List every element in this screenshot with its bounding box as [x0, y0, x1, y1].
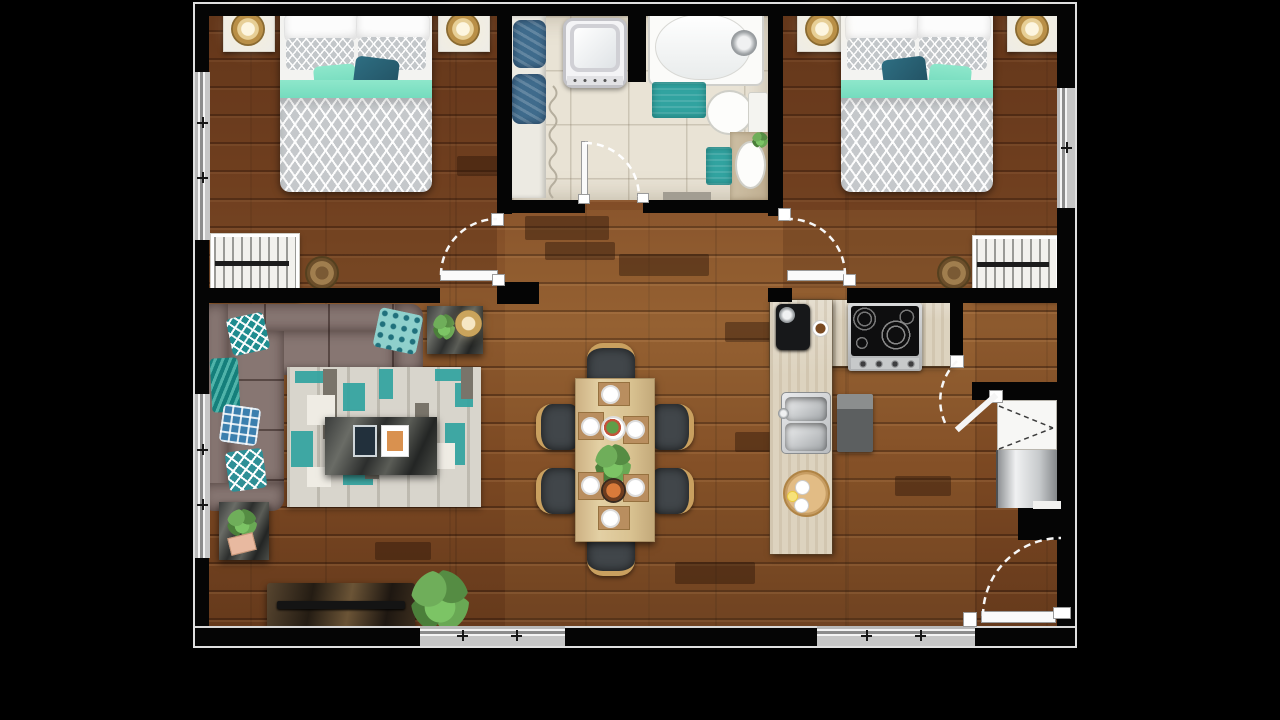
chevron-duvet [841, 98, 993, 192]
apartment-floor-plan [195, 4, 1075, 646]
sink-basin [785, 423, 827, 451]
cooktop-knobs [851, 358, 919, 369]
dresser-rail [215, 261, 289, 266]
geometric-throw-pillow [219, 404, 262, 447]
rug-block [435, 369, 463, 381]
door-jamb [1053, 607, 1071, 619]
window [195, 394, 210, 558]
book [353, 425, 377, 457]
bathroom-door-leaf [581, 141, 588, 197]
tv [277, 601, 405, 609]
dining-chair [536, 468, 578, 514]
window-mullion [511, 630, 522, 641]
folded-towel [513, 20, 546, 68]
wall-bedroom-1-south [195, 288, 440, 303]
door-jamb [492, 274, 505, 286]
plate [601, 385, 620, 404]
door-jamb [578, 194, 590, 204]
table-lamp [1015, 12, 1049, 46]
window-mullion [1061, 142, 1072, 153]
book [381, 425, 409, 457]
table-lamp [231, 12, 265, 46]
window-mullion [457, 630, 468, 641]
door-jamb [989, 390, 1003, 403]
wall-fridge-nook [1018, 508, 1057, 540]
folded-towel [512, 74, 546, 124]
door-jamb [491, 213, 504, 226]
wall-bathroom-south-b [643, 200, 770, 213]
food-bowl [601, 478, 626, 503]
dining-chair [652, 468, 694, 514]
plank-patch [525, 216, 609, 240]
entry-door-leaf [981, 611, 1056, 623]
wall-closet-north [972, 382, 1057, 400]
wall-kitchen-north-stub [768, 288, 792, 302]
door-jamb [963, 612, 977, 627]
window [420, 626, 565, 646]
refrigerator [996, 450, 1057, 508]
washing-machine-panel [567, 76, 623, 85]
round-basket [937, 256, 971, 290]
window-mullion [197, 117, 208, 128]
gold-bowl [455, 310, 482, 337]
window [817, 626, 975, 646]
four-burner-cooktop [851, 306, 919, 356]
plank-patch [545, 242, 615, 260]
door-jamb [637, 193, 649, 203]
plate [581, 417, 600, 436]
chevron-throw-pillow [225, 311, 270, 356]
plate [581, 476, 600, 495]
fridge-nook-sill [1033, 501, 1061, 509]
bedroom-1-door-leaf [440, 270, 498, 281]
plate [626, 420, 645, 439]
teal-bath-mat [652, 82, 706, 118]
dining-chair [652, 404, 694, 450]
window-mullion [861, 630, 872, 641]
floor-plan-canvas [0, 0, 1280, 720]
rug-block [291, 431, 313, 467]
rug-block [379, 369, 393, 399]
round-basket [305, 256, 339, 290]
rug-block [295, 371, 325, 383]
sink-basin [785, 397, 827, 421]
round-sink [735, 141, 766, 189]
plate [601, 509, 620, 528]
coffee-cup [812, 320, 829, 337]
table-lamp [805, 12, 839, 46]
plate [626, 478, 645, 497]
wall-bathroom-right [768, 4, 783, 216]
side-table-plant [433, 314, 455, 340]
wall-kitchen-nook [950, 302, 963, 360]
lemon-slice [787, 491, 798, 502]
closet-cabinet [997, 400, 1057, 450]
wall-bathroom-south-a [497, 200, 585, 213]
toilet-bowl [706, 90, 753, 135]
threshold-mat [663, 192, 711, 200]
table-lamp [446, 12, 480, 46]
window-mullion [197, 172, 208, 183]
small-plant [752, 132, 768, 148]
wall-bathroom-left [497, 4, 512, 214]
large-potted-plant [411, 570, 469, 632]
wall-bathroom-divider [628, 4, 646, 82]
toilet-tank [748, 92, 768, 134]
rug-stripe [461, 367, 473, 399]
wall-bedroom-2-south [847, 288, 1075, 303]
kitchen-floor-mat [837, 394, 873, 452]
door-jamb [778, 208, 791, 221]
door-jamb [950, 355, 964, 368]
salad-bowl [601, 416, 626, 441]
dining-chair [536, 404, 578, 450]
dresser-rail [977, 262, 1049, 267]
plank-patch [619, 254, 709, 276]
bathtub-faucet [731, 30, 757, 56]
window-mullion [915, 630, 926, 641]
washing-machine-lid [570, 24, 620, 72]
teal-bath-mat [706, 147, 732, 185]
bedroom-2-door-leaf [787, 270, 845, 281]
window [195, 72, 210, 240]
rug-block [343, 383, 365, 411]
sink-faucet [778, 408, 789, 419]
espresso-machine-dial [779, 307, 795, 323]
plank-patch [675, 562, 755, 584]
chevron-duvet [280, 98, 432, 192]
window-mullion [197, 444, 208, 455]
plank-patch [895, 476, 951, 496]
window-mullion [197, 499, 208, 510]
diamond-throw-pillow [224, 448, 267, 493]
plank-patch [375, 542, 431, 560]
door-jamb [843, 274, 856, 286]
